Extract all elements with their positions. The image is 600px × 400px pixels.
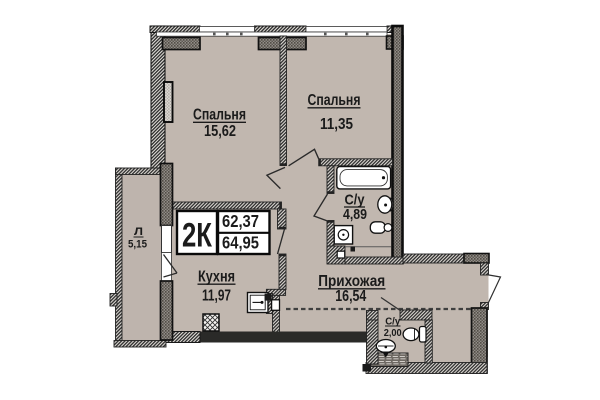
svg-text:11,97: 11,97 [202, 288, 231, 305]
svg-text:11,35: 11,35 [320, 116, 353, 133]
svg-text:64,95: 64,95 [222, 233, 259, 253]
svg-text:Л: Л [134, 226, 143, 238]
svg-text:2К: 2К [182, 217, 212, 255]
svg-text:16,54: 16,54 [335, 288, 366, 305]
svg-text:15,62: 15,62 [204, 123, 236, 140]
svg-text:Спальня: Спальня [193, 107, 246, 124]
svg-text:62,37: 62,37 [222, 211, 259, 231]
svg-text:Кухня: Кухня [198, 269, 235, 286]
svg-text:Спальня: Спальня [308, 92, 361, 109]
svg-text:4,89: 4,89 [343, 206, 367, 223]
svg-text:2,00: 2,00 [384, 328, 402, 339]
svg-text:5,15: 5,15 [128, 239, 147, 251]
